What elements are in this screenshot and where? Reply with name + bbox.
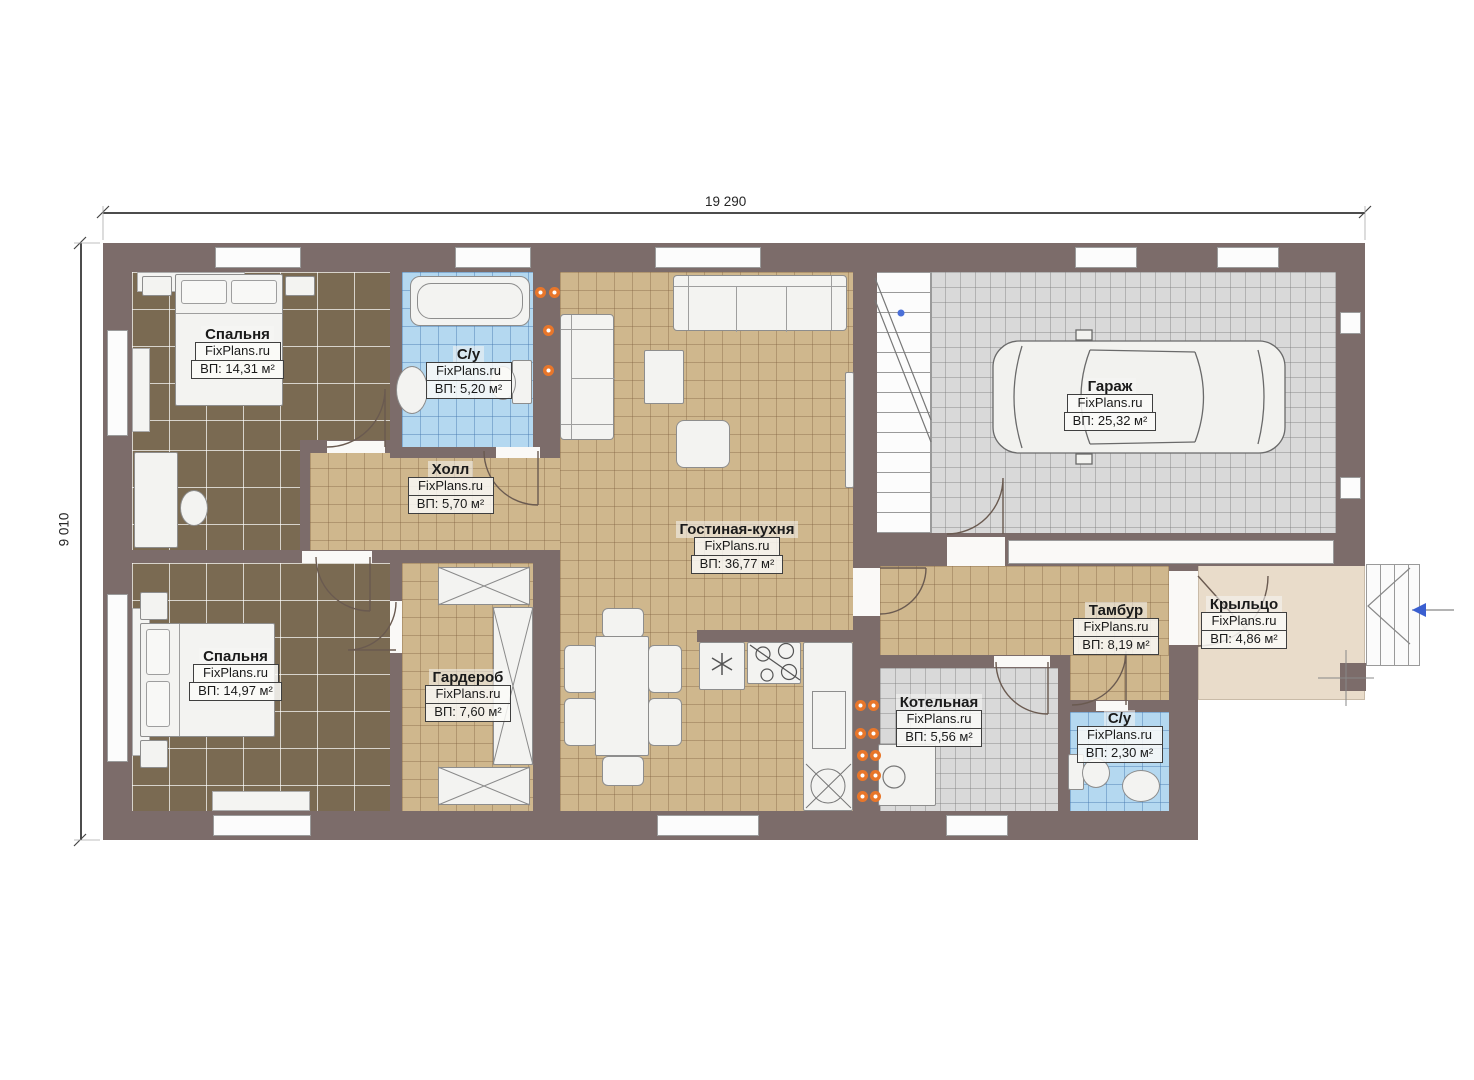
wall-bedroom1-bath	[390, 272, 402, 455]
room-brand: FixPlans.ru	[1073, 618, 1159, 637]
window-living-top	[655, 247, 761, 268]
door-opening-bedroom-2	[302, 551, 372, 563]
sofa-arm-line	[831, 276, 832, 330]
bathtub	[410, 276, 530, 326]
door-opening-wardrobe	[390, 601, 402, 653]
window-boiler-bottom	[946, 815, 1008, 836]
dimension-line-left	[80, 243, 82, 840]
dimension-height-label: 9 010	[56, 508, 71, 552]
wall-bath-living	[533, 243, 560, 458]
door-opening-vestibule	[853, 568, 880, 616]
nightstand	[142, 276, 172, 296]
utility-dot	[870, 750, 881, 761]
room-name: Тамбур	[1085, 602, 1147, 619]
floorplan-canvas: 19 290 9 010	[0, 0, 1474, 1080]
armchair	[676, 420, 730, 468]
room-name: Гараж	[1084, 378, 1137, 395]
garage-door	[1008, 540, 1334, 564]
sofa-arm-line	[688, 276, 689, 330]
porch-pillar	[1340, 663, 1366, 691]
room-label-garage: Гараж FixPlans.ru ВП: 25,32 м²	[1034, 378, 1186, 431]
door-opening-boiler	[994, 656, 1050, 667]
window-garage-right-2	[1340, 477, 1361, 499]
chair	[602, 608, 644, 638]
staircase	[875, 272, 932, 533]
sill-bedroom-2-bottom	[212, 791, 310, 811]
wall-kitchen-half	[697, 630, 855, 642]
wardrobe-cabinet	[438, 767, 530, 805]
room-name: Котельная	[896, 694, 983, 711]
utility-dot	[543, 325, 554, 336]
room-name: Крыльцо	[1206, 596, 1282, 613]
door-opening-garage	[947, 537, 1005, 566]
room-brand: FixPlans.ru	[694, 537, 780, 556]
sofa-back-line	[571, 315, 572, 439]
room-area: ВП: 8,19 м²	[1073, 636, 1159, 655]
window-garage-right-1	[1340, 312, 1361, 334]
room-name: Холл	[428, 461, 474, 478]
room-area: ВП: 5,20 м²	[426, 380, 512, 399]
utility-dot	[857, 791, 868, 802]
coffee-table	[644, 350, 684, 404]
nightstand	[140, 592, 168, 620]
window-kitchen-bottom	[657, 815, 759, 836]
utility-dot	[535, 287, 546, 298]
wall-nook-hall	[300, 440, 310, 553]
room-area: ВП: 2,30 м²	[1077, 744, 1163, 763]
bathtub-inner	[417, 283, 523, 319]
window-garage-top-2	[1217, 247, 1279, 268]
window-bedroom-1-left	[107, 330, 128, 436]
window-bedroom-2-bottom	[213, 815, 311, 836]
sofa-cushion-line	[736, 286, 737, 332]
kitchen-counter-inset	[812, 691, 846, 749]
desk-chair	[180, 490, 208, 526]
room-name: Гардероб	[429, 669, 508, 686]
sill-bedroom-1-left	[132, 348, 150, 432]
room-area: ВП: 7,60 м²	[425, 703, 511, 722]
floor-vestibule-2	[1070, 655, 1169, 700]
boiler-unit	[878, 744, 936, 806]
chair	[564, 698, 598, 746]
room-brand: FixPlans.ru	[1077, 726, 1163, 745]
room-brand: FixPlans.ru	[425, 685, 511, 704]
wall-living-stairs	[853, 272, 877, 533]
utility-dot	[857, 770, 868, 781]
room-name: Гостиная-кухня	[676, 521, 799, 538]
room-area: ВП: 5,56 м²	[896, 728, 982, 747]
wardrobe-cabinet	[438, 567, 530, 605]
sofa-small	[560, 314, 614, 440]
dimension-width-label: 19 290	[700, 194, 751, 209]
room-area: ВП: 25,32 м²	[1064, 412, 1157, 431]
desk	[134, 452, 178, 548]
window-bedroom-2-left	[107, 594, 128, 762]
room-brand: FixPlans.ru	[195, 342, 281, 361]
porch-steps	[1366, 564, 1420, 666]
kitchen-sink-unit	[699, 642, 745, 690]
room-name: Спальня	[199, 648, 272, 665]
pillow	[231, 280, 277, 304]
room-name: С/у	[453, 346, 484, 363]
kitchen-counter	[803, 642, 853, 811]
window-bathroom-1-top	[455, 247, 531, 268]
kitchen-stove	[747, 642, 801, 684]
utility-dot	[543, 365, 554, 376]
room-label-bedroom-1: Спальня FixPlans.ru ВП: 14,31 м²	[160, 326, 315, 379]
room-area: ВП: 14,97 м²	[189, 682, 282, 701]
room-area: ВП: 14,31 м²	[191, 360, 284, 379]
room-name: Спальня	[201, 326, 274, 343]
room-label-bathroom-1: С/у FixPlans.ru ВП: 5,20 м²	[406, 346, 531, 399]
room-area: ВП: 4,86 м²	[1201, 630, 1287, 649]
chair	[648, 645, 682, 693]
room-area: ВП: 5,70 м²	[408, 495, 494, 514]
wall-exterior-right-garage	[1336, 243, 1365, 566]
sofa-cushion-line	[571, 378, 615, 379]
door-opening-bedroom-1	[327, 441, 385, 453]
utility-dot	[549, 287, 560, 298]
utility-dot	[857, 750, 868, 761]
room-brand: FixPlans.ru	[1201, 612, 1287, 631]
tv-console	[845, 372, 854, 488]
room-brand: FixPlans.ru	[426, 362, 512, 381]
room-brand: FixPlans.ru	[896, 710, 982, 729]
room-label-porch: Крыльцо FixPlans.ru ВП: 4,86 м²	[1168, 596, 1320, 649]
chair	[602, 756, 644, 786]
blanket-line	[176, 313, 282, 314]
door-opening-bathroom-1	[496, 447, 540, 458]
dining-table	[595, 636, 649, 756]
chair	[564, 645, 598, 693]
room-area: ВП: 36,77 м²	[691, 555, 784, 574]
utility-dot	[870, 791, 881, 802]
sofa-large	[673, 275, 847, 331]
room-brand: FixPlans.ru	[1067, 394, 1153, 413]
room-name: С/у	[1104, 710, 1135, 727]
window-bedroom-1-top	[215, 247, 301, 268]
room-label-boiler-room: Котельная FixPlans.ru ВП: 5,56 м²	[863, 694, 1015, 747]
pillow	[181, 280, 227, 304]
room-label-hall: Холл FixPlans.ru ВП: 5,70 м²	[388, 461, 513, 514]
sink	[1122, 770, 1160, 802]
room-label-bathroom-2: С/у FixPlans.ru ВП: 2,30 м²	[1058, 710, 1181, 763]
nightstand	[140, 740, 168, 768]
room-label-wardrobe: Гардероб FixPlans.ru ВП: 7,60 м²	[404, 669, 532, 722]
room-label-living-kitchen: Гостиная-кухня FixPlans.ru ВП: 36,77 м²	[648, 521, 826, 574]
sofa-arm-line	[561, 424, 613, 425]
chair	[648, 698, 682, 746]
sofa-back-line	[674, 286, 846, 287]
utility-dot	[870, 770, 881, 781]
nightstand	[285, 276, 315, 296]
room-brand: FixPlans.ru	[193, 664, 279, 683]
window-garage-top-1	[1075, 247, 1137, 268]
room-brand: FixPlans.ru	[408, 477, 494, 496]
wall-wardrobe-living	[533, 553, 560, 811]
sofa-arm-line	[561, 329, 613, 330]
dimension-line-top	[103, 212, 1365, 214]
sofa-cushion-line	[786, 286, 787, 332]
room-label-bedroom-2: Спальня FixPlans.ru ВП: 14,97 м²	[158, 648, 313, 701]
